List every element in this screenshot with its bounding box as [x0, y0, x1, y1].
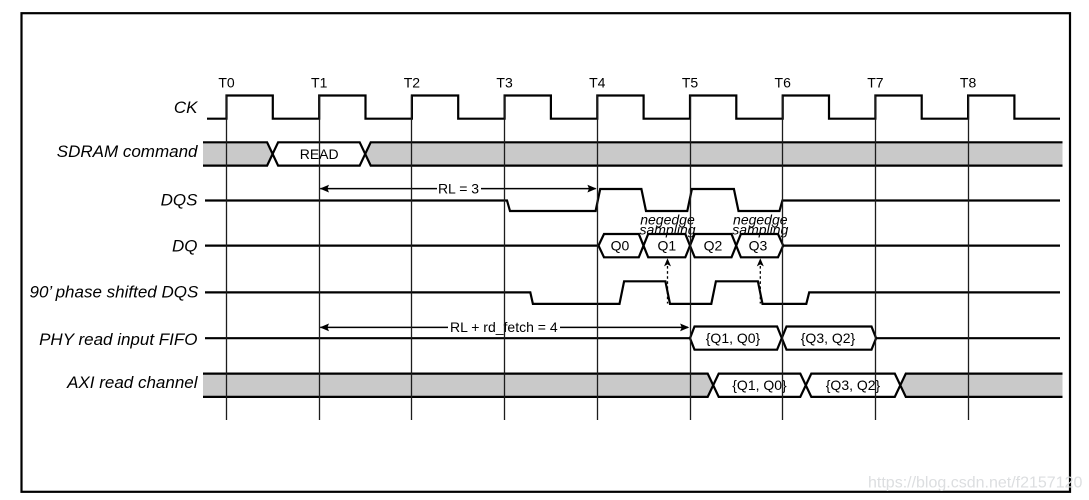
svg-text:RL = 3: RL = 3: [438, 180, 479, 196]
svg-text:Q0: Q0: [611, 238, 630, 254]
svg-text:T7: T7: [867, 75, 884, 91]
svg-text:PHY read input FIFO: PHY read input FIFO: [39, 330, 197, 349]
svg-text:{Q3, Q2}: {Q3, Q2}: [801, 330, 856, 346]
svg-text:SDRAM command: SDRAM command: [57, 142, 198, 161]
svg-text:AXI read channel: AXI read channel: [66, 373, 199, 392]
svg-text:T6: T6: [775, 75, 792, 91]
svg-text:https://blog.csdn.net/f2157120: https://blog.csdn.net/f2157120: [868, 475, 1082, 492]
svg-text:90’ phase shifted DQS: 90’ phase shifted DQS: [30, 283, 199, 302]
svg-text:T5: T5: [682, 75, 699, 91]
svg-text:Q3: Q3: [749, 238, 768, 254]
svg-text:T4: T4: [589, 75, 606, 91]
svg-text:T2: T2: [404, 75, 421, 91]
svg-text:T0: T0: [218, 75, 235, 91]
svg-text:CK: CK: [174, 98, 198, 117]
svg-text:Q2: Q2: [704, 238, 723, 254]
svg-text:DQS: DQS: [161, 191, 199, 210]
svg-text:T1: T1: [311, 75, 328, 91]
svg-text:{Q1, Q0}: {Q1, Q0}: [732, 377, 787, 393]
svg-text:{Q1, Q0}: {Q1, Q0}: [706, 330, 761, 346]
svg-text:T8: T8: [960, 75, 977, 91]
svg-text:DQ: DQ: [172, 237, 198, 256]
svg-text:T3: T3: [496, 75, 513, 91]
svg-text:{Q3, Q2}: {Q3, Q2}: [826, 377, 881, 393]
svg-text:Q1: Q1: [657, 238, 676, 254]
